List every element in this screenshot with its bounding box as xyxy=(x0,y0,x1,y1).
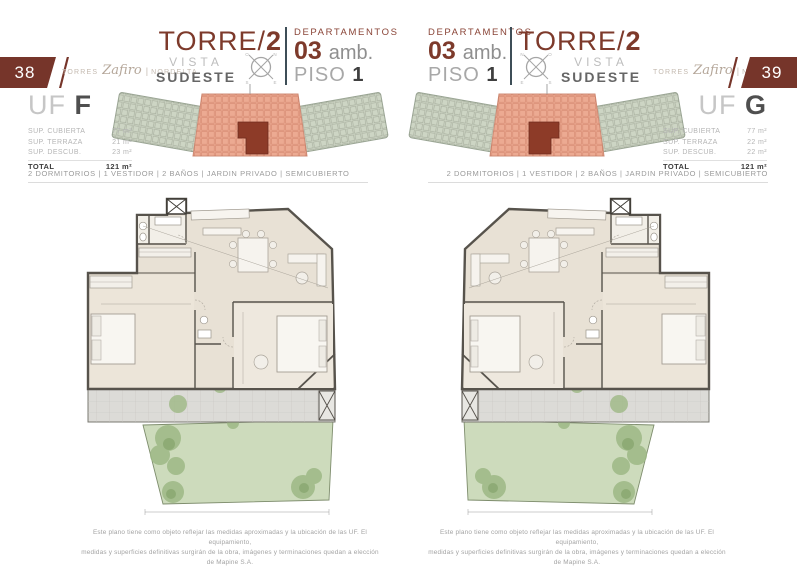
header-divider xyxy=(510,27,512,85)
page-right: DEPARTAMENTOS 03 amb. PISO 1 TORRE/2 N O… xyxy=(399,0,797,558)
amenities-rule xyxy=(28,182,368,183)
surface-table: SUP. CUBIERTA 77 m² SUP. TERRAZA 21 m² S… xyxy=(28,127,132,172)
surface-label: SUP. DESCUB. xyxy=(663,148,716,159)
vista-label: VISTA xyxy=(152,55,240,69)
compass-letter-tl: O xyxy=(245,52,249,57)
unit-info-block: UF F SUP. CUBIERTA 77 m² SUP. TERRAZA 21… xyxy=(28,90,132,172)
disclaimer-line1: Este plano tiene como objeto reflejar la… xyxy=(427,528,727,548)
compass-letter-tl: N xyxy=(520,52,523,57)
uf-title: UF G xyxy=(663,90,767,121)
surface-label: SUP. CUBIERTA xyxy=(663,127,720,138)
surface-label: SUP. TERRAZA xyxy=(663,138,718,149)
uf-letter: G xyxy=(745,90,767,120)
surface-row: SUP. DESCUB. 23 m² xyxy=(28,148,132,159)
surface-row: SUP. TERRAZA 22 m² xyxy=(663,138,767,149)
page-number: 39 xyxy=(762,63,783,83)
surface-row: SUP. CUBIERTA 77 m² xyxy=(28,127,132,138)
unit-info-block: UF G SUP. CUBIERTA 77 m² SUP. TERRAZA 22… xyxy=(663,90,767,172)
uf-letter: F xyxy=(75,90,93,120)
surface-value: 21 m² xyxy=(112,138,132,149)
disclaimer: Este plano tiene como objeto reflejar la… xyxy=(80,528,380,568)
page-number-badge-group: 39 xyxy=(728,57,797,88)
page-number-badge-group: 38 xyxy=(0,57,69,88)
badge-slash-decoration xyxy=(728,57,738,88)
amb-suffix: amb. xyxy=(463,42,507,64)
surface-row: SUP. TERRAZA 21 m² xyxy=(28,138,132,149)
surface-label: SUP. CUBIERTA xyxy=(28,127,85,138)
amb-suffix: amb. xyxy=(329,42,373,64)
amenities-line: 2 DORMITORIOS | 1 VESTIDOR | 2 BAÑOS | J… xyxy=(428,169,768,178)
surface-value: 77 m² xyxy=(747,127,767,138)
uf-label: UF xyxy=(698,90,736,120)
surface-row: SUP. DESCUB. 22 m² xyxy=(663,148,767,159)
vista-block: VISTA SUDESTE xyxy=(152,55,240,85)
compass-icon: O N S E xyxy=(243,48,279,86)
surface-row: SUP. CUBIERTA 77 m² xyxy=(663,127,767,138)
compass-icon: N O E S xyxy=(518,48,554,86)
brand-torres: TORRES xyxy=(653,69,689,76)
brand-torres: TORRES xyxy=(62,69,98,76)
surface-label: SUP. TERRAZA xyxy=(28,138,83,149)
amb-line: 03 amb. xyxy=(294,38,399,64)
page-number: 38 xyxy=(15,63,36,83)
page-number-badge: 38 xyxy=(0,57,56,88)
vista-label: VISTA xyxy=(557,55,645,69)
tower-number: 2 xyxy=(626,26,642,56)
floor-plan xyxy=(449,192,714,527)
compass-letter-tr: N xyxy=(273,52,276,57)
surface-value: 22 m² xyxy=(747,138,767,149)
amenities-line: 2 DORMITORIOS | 1 VESTIDOR | 2 BAÑOS | J… xyxy=(28,169,349,178)
page-left: 38 TORRES Zafiro | NORDELTA TORRE/2 VIST… xyxy=(0,0,398,558)
surface-table: SUP. CUBIERTA 77 m² SUP. TERRAZA 22 m² S… xyxy=(663,127,767,172)
department-block: DEPARTAMENTOS 03 amb. PISO 1 xyxy=(294,27,399,87)
surface-label: SUP. DESCUB. xyxy=(28,148,81,159)
building-key-plan xyxy=(407,82,687,170)
surface-value: 23 m² xyxy=(112,148,132,159)
disclaimer-line1: Este plano tiene como objeto reflejar la… xyxy=(80,528,380,548)
uf-label: UF xyxy=(28,90,66,120)
amenities-rule xyxy=(428,182,768,183)
disclaimer: Este plano tiene como objeto reflejar la… xyxy=(427,528,727,568)
brand-zafiro: Zafiro xyxy=(102,63,142,78)
surface-value: 22 m² xyxy=(747,148,767,159)
amb-number: 03 xyxy=(428,37,456,65)
uf-title: UF F xyxy=(28,90,132,121)
brand-zafiro: Zafiro xyxy=(693,63,733,78)
amb-line: 03 amb. xyxy=(428,38,533,64)
header-divider xyxy=(285,27,287,85)
department-block: DEPARTAMENTOS 03 amb. PISO 1 xyxy=(428,27,533,87)
vista-block: VISTA SUDESTE xyxy=(557,55,645,85)
compass-letter-tr: O xyxy=(548,52,552,57)
surface-value: 77 m² xyxy=(112,127,132,138)
building-key-plan xyxy=(110,82,390,170)
brand-separator: | xyxy=(146,66,148,76)
amb-number: 03 xyxy=(294,37,322,65)
page-number-badge: 39 xyxy=(741,57,797,88)
floor-plan xyxy=(83,192,348,527)
